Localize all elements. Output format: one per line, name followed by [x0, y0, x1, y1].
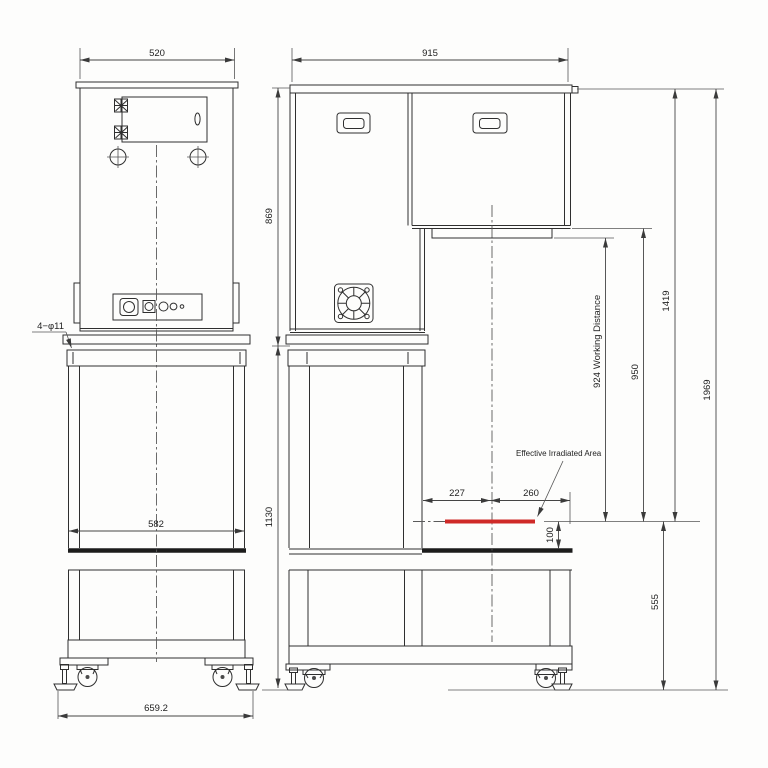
caster-left	[77, 665, 98, 687]
dim-520: 520	[149, 48, 165, 59]
recessed-handle-left	[337, 113, 370, 133]
recessed-handle-right	[473, 113, 507, 133]
dim-555: 555	[650, 594, 661, 610]
side-tab-right	[233, 283, 239, 323]
column-bottom-band	[290, 329, 425, 333]
fan-screw	[338, 314, 342, 318]
panel-indicator	[180, 305, 184, 309]
dim-950: 950	[630, 364, 641, 380]
cooling-fan	[335, 284, 374, 323]
foot-plate-right	[205, 658, 253, 665]
side-caster-right	[535, 669, 557, 688]
leveling-foot-left	[54, 665, 77, 691]
label-mount-holes: 4−φ11	[37, 321, 64, 332]
effective-area-leader	[538, 461, 564, 517]
foot-plate-left	[60, 658, 108, 665]
switch-button	[145, 303, 153, 311]
panel-screw-left	[107, 146, 129, 168]
side-caster-left	[303, 669, 325, 688]
callout-leader	[66, 332, 72, 348]
drawing-canvas: 520 582 659.2 4−φ11 915 869 1130 227 260…	[0, 0, 768, 768]
fan-screw	[365, 314, 369, 318]
side-right-wall	[565, 93, 571, 226]
column-right-wall	[420, 229, 425, 332]
side-panel-divider	[408, 93, 412, 226]
dim-659-2: 659.2	[144, 703, 168, 714]
side-stand-legs-upper	[289, 366, 422, 548]
panel-screw-right	[187, 146, 209, 168]
side-view	[285, 85, 578, 690]
side-tab-left	[74, 283, 80, 323]
fan-screw	[338, 288, 342, 292]
side-mount-flange	[286, 335, 428, 344]
side-leveling-foot-left	[285, 668, 305, 690]
side-stand-legs-lower	[289, 570, 570, 646]
panel-button-1	[159, 302, 168, 311]
dim-260: 260	[523, 488, 539, 499]
door-hinge-bottom	[115, 126, 128, 139]
side-bottom-frame	[289, 646, 572, 664]
engineering-drawing: 520 582 659.2 4−φ11 915 869 1130 227 260…	[0, 0, 768, 768]
side-base-rail	[288, 350, 425, 366]
dim-1130: 1130	[264, 507, 275, 527]
caster-right	[212, 665, 233, 687]
side-top-plate	[290, 85, 572, 93]
label-effective-area: Effective Irradiated Area	[516, 449, 602, 458]
front-access-door	[122, 97, 207, 142]
label-working-distance: Working Distance	[592, 295, 603, 369]
effective-irradiated-area-line	[445, 520, 535, 524]
dim-1969: 1969	[702, 379, 713, 400]
hinge-hatch	[115, 126, 128, 139]
dim-869: 869	[264, 208, 275, 224]
fan-screw	[365, 288, 369, 292]
dim-915: 915	[422, 48, 438, 59]
hinge-hatch	[115, 99, 128, 112]
dim-100: 100	[545, 527, 556, 543]
dim-1419: 1419	[661, 290, 672, 311]
fan-hub	[346, 296, 361, 311]
dim-582: 582	[148, 519, 164, 530]
control-panel-plate	[113, 294, 202, 320]
panel-button-2	[170, 303, 177, 310]
dimension-annotations: 520 582 659.2 4−φ11 915 869 1130 227 260…	[32, 48, 728, 719]
power-connector-socket	[124, 302, 135, 313]
front-view	[54, 82, 259, 690]
front-top-plate	[76, 82, 238, 88]
control-panel	[113, 294, 202, 320]
side-top-tab	[572, 87, 578, 94]
dim-227: 227	[449, 488, 465, 499]
dim-924: 924	[592, 372, 603, 388]
leveling-foot-right	[236, 665, 259, 691]
ext-right-levels	[448, 89, 728, 690]
side-left-wall	[290, 93, 296, 331]
door-hinge-top	[115, 99, 128, 112]
side-foot-plate-left	[286, 664, 330, 670]
fan-spokes	[338, 287, 370, 319]
door-handle-slot	[195, 113, 200, 125]
